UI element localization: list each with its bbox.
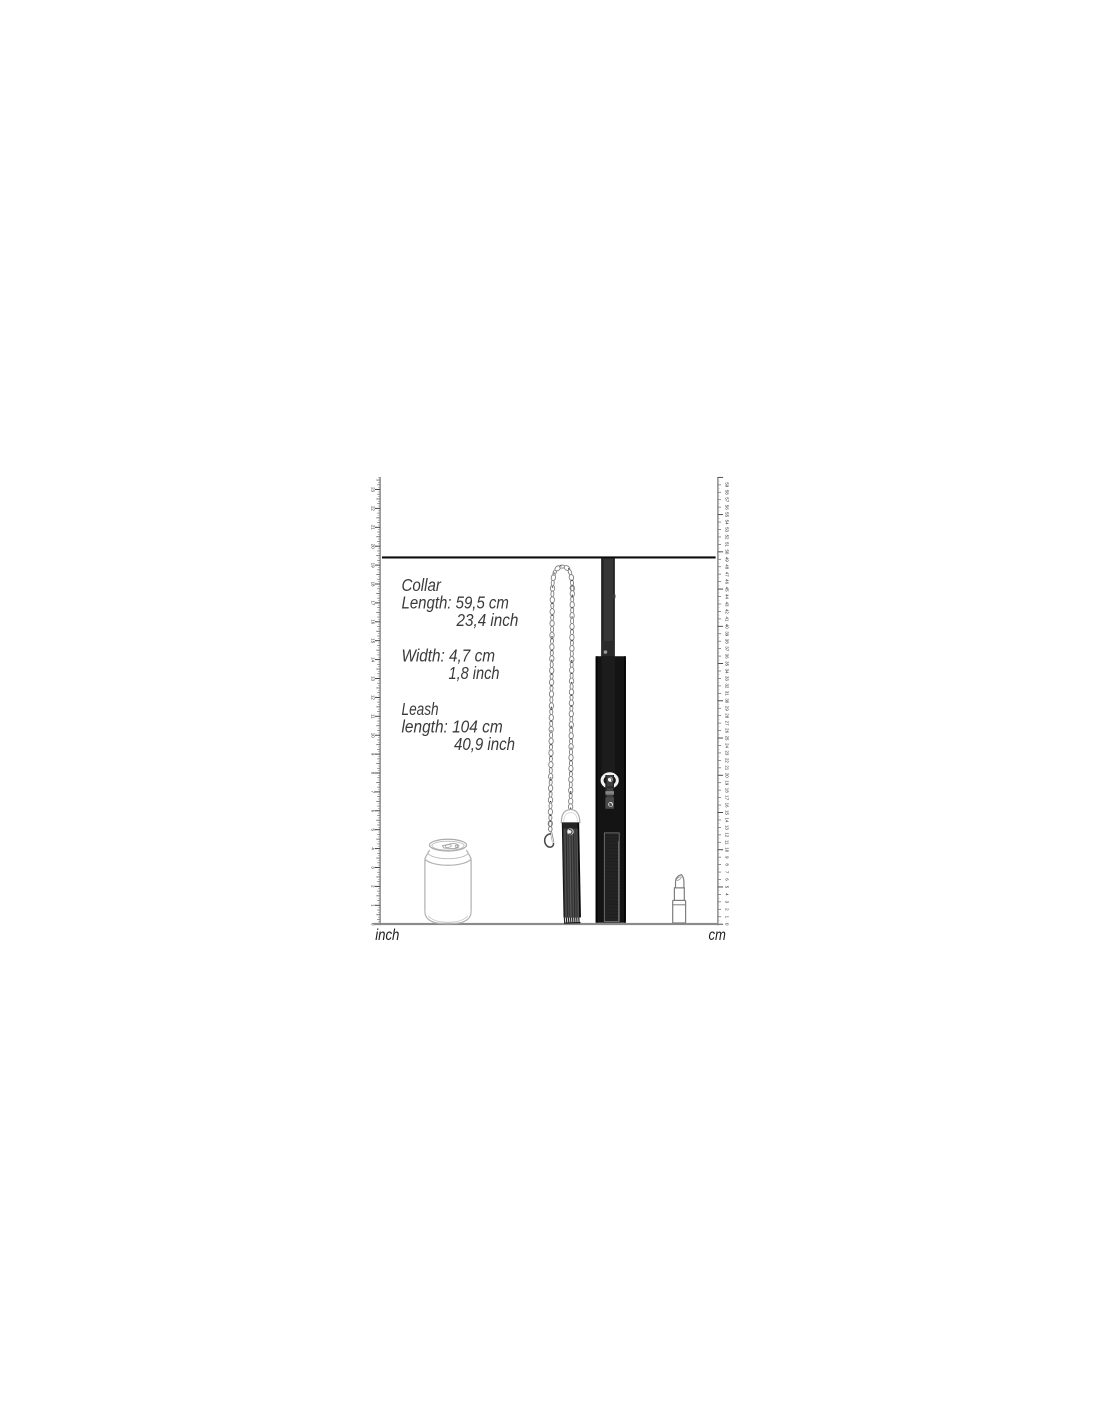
- svg-text:42: 42: [724, 609, 729, 614]
- svg-text:13: 13: [371, 676, 376, 681]
- svg-text:31: 31: [724, 691, 729, 696]
- svg-text:1,8 inch: 1,8 inch: [449, 663, 500, 683]
- svg-text:47: 47: [724, 572, 729, 577]
- svg-text:59: 59: [724, 482, 729, 487]
- svg-text:11: 11: [724, 840, 729, 845]
- svg-text:14: 14: [724, 817, 729, 822]
- svg-text:56: 56: [724, 505, 729, 510]
- svg-text:26: 26: [724, 728, 729, 733]
- svg-text:18: 18: [724, 788, 729, 793]
- svg-text:24: 24: [724, 743, 729, 748]
- svg-text:11: 11: [371, 714, 376, 719]
- svg-text:20: 20: [724, 773, 729, 778]
- svg-text:15: 15: [724, 810, 729, 815]
- svg-text:inch: inch: [375, 927, 399, 944]
- svg-text:33: 33: [724, 676, 729, 681]
- svg-text:17: 17: [371, 600, 376, 605]
- svg-text:16: 16: [724, 803, 729, 808]
- svg-text:55: 55: [724, 512, 729, 517]
- svg-text:21: 21: [724, 765, 729, 770]
- svg-text:46: 46: [724, 579, 729, 584]
- svg-text:20: 20: [371, 544, 376, 549]
- svg-text:19: 19: [371, 563, 376, 568]
- svg-text:19: 19: [724, 780, 729, 785]
- svg-text:17: 17: [724, 795, 729, 800]
- svg-text:23,4 inch: 23,4 inch: [456, 610, 519, 630]
- svg-text:14: 14: [371, 657, 376, 662]
- svg-text:40: 40: [724, 624, 729, 629]
- svg-text:38: 38: [724, 639, 729, 644]
- svg-text:10: 10: [724, 847, 729, 852]
- svg-text:13: 13: [724, 825, 729, 830]
- svg-text:16: 16: [371, 619, 376, 624]
- svg-text:43: 43: [724, 602, 729, 607]
- svg-text:30: 30: [724, 698, 729, 703]
- svg-text:36: 36: [724, 654, 729, 659]
- svg-text:27: 27: [724, 721, 729, 726]
- svg-text:29: 29: [724, 706, 729, 711]
- svg-text:12: 12: [724, 832, 729, 837]
- svg-text:44: 44: [724, 594, 729, 599]
- svg-text:10: 10: [371, 733, 376, 738]
- svg-text:39: 39: [724, 631, 729, 636]
- svg-text:57: 57: [724, 497, 729, 502]
- svg-text:cm: cm: [709, 927, 726, 944]
- svg-text:52: 52: [724, 535, 729, 540]
- svg-text:21: 21: [371, 525, 376, 530]
- svg-text:23: 23: [371, 487, 376, 492]
- svg-text:22: 22: [724, 758, 729, 763]
- svg-text:22: 22: [371, 506, 376, 511]
- svg-text:41: 41: [724, 616, 729, 621]
- svg-text:53: 53: [724, 527, 729, 532]
- svg-text:51: 51: [724, 542, 729, 547]
- svg-text:34: 34: [724, 669, 729, 674]
- svg-text:12: 12: [371, 695, 376, 700]
- svg-text:23: 23: [724, 750, 729, 755]
- svg-text:54: 54: [724, 520, 729, 525]
- svg-text:18: 18: [371, 582, 376, 587]
- svg-text:37: 37: [724, 646, 729, 651]
- svg-text:15: 15: [371, 638, 376, 643]
- svg-text:25: 25: [724, 736, 729, 741]
- svg-text:35: 35: [724, 661, 729, 666]
- svg-text:49: 49: [724, 557, 729, 562]
- svg-text:48: 48: [724, 564, 729, 569]
- svg-text:58: 58: [724, 490, 729, 495]
- svg-text:40,9 inch: 40,9 inch: [454, 734, 515, 754]
- svg-text:32: 32: [724, 683, 729, 688]
- svg-text:50: 50: [724, 549, 729, 554]
- svg-text:45: 45: [724, 587, 729, 592]
- svg-text:28: 28: [724, 713, 729, 718]
